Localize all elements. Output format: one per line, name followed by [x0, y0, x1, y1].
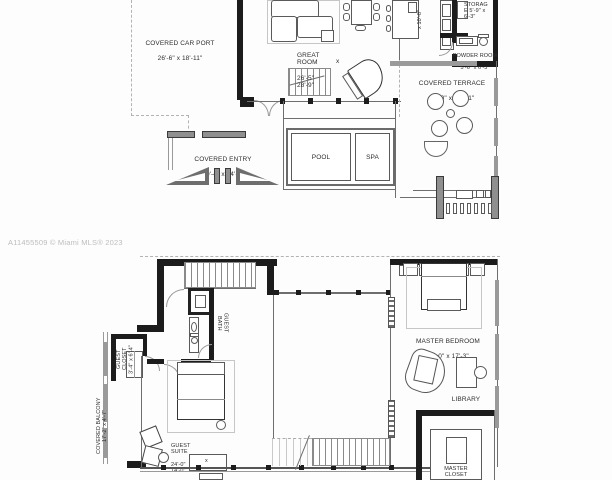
- step-landing: [456, 190, 473, 199]
- terrace-north-wall: [390, 61, 478, 66]
- terrace-label: COVERED TERRACE 24'-0" x 17'-11": [404, 72, 500, 110]
- great-room-south-glass-line: [243, 101, 401, 102]
- pool-deck-west-line: [283, 101, 284, 190]
- suite-north-wall: [147, 359, 164, 364]
- nightstand: [216, 420, 226, 430]
- column-post: [308, 98, 313, 104]
- dining-chair: [373, 3, 380, 11]
- door-swing: [166, 289, 184, 307]
- side-table: [158, 452, 169, 463]
- roof-dashed-line: [140, 256, 500, 257]
- suite-east-line: [273, 294, 274, 438]
- side-table: [321, 30, 334, 42]
- pantry-shelf: [442, 19, 451, 31]
- column-post: [336, 98, 341, 104]
- steps-stub-line: [413, 190, 437, 191]
- column-post: [242, 98, 247, 104]
- bed-pillow-line: [421, 276, 467, 277]
- kitchen-sink: [408, 2, 417, 13]
- railing-post: [196, 465, 201, 470]
- pantry-shelf: [442, 4, 451, 17]
- bar-stool: [386, 5, 391, 12]
- pillar: [436, 176, 444, 219]
- baluster: [488, 203, 492, 214]
- window-louver: [388, 297, 395, 328]
- bed-pillows: [177, 362, 225, 375]
- baluster: [481, 203, 485, 214]
- grand-piano: [340, 51, 394, 105]
- room-dims: 5'-6" x 6'-3": [448, 65, 502, 71]
- guest-bath-label: GUEST BATH: [216, 303, 228, 343]
- entry-planter-bar: [202, 131, 246, 138]
- balcony-label: COVERED BALCONY 17'-2" x 4'-7": [96, 395, 108, 457]
- desk-chair: [474, 366, 487, 379]
- dining-table: [351, 0, 372, 25]
- suite-west-line: [141, 356, 142, 467]
- dining-chair: [343, 13, 350, 21]
- lounge-chair: [452, 90, 469, 107]
- terrace-dashed-divider: [399, 60, 400, 117]
- window-louver: [388, 400, 395, 438]
- great-room-west-wall: [237, 0, 243, 100]
- dimension-x-mark: x: [336, 58, 339, 66]
- room-name: GREAT ROOM: [297, 52, 333, 67]
- pool-deck-south-line: [283, 189, 396, 190]
- step-block: [485, 190, 491, 198]
- bar-stool: [386, 15, 391, 22]
- entry-planter-bar: [167, 131, 195, 138]
- great-room-label: GREAT ROOM 26'-5" 28'-9": [297, 44, 333, 98]
- dining-chair: [373, 13, 380, 21]
- f2-west-wall-upper: [157, 259, 164, 329]
- floor-plan-sheet: COVERED CAR PORT 26'-6" x 18'-11" GREAT …: [0, 0, 612, 480]
- f2-south-railing-line: [140, 471, 432, 472]
- powder-sink: [459, 38, 473, 44]
- pool-deck-north-line: [283, 118, 396, 119]
- entry-bollard: [214, 168, 220, 184]
- carport-dashed-south: [131, 115, 189, 116]
- hall-wall: [137, 325, 164, 332]
- bed-fold-line: [177, 399, 225, 400]
- railing-post: [266, 465, 271, 470]
- carport-label: COVERED CAR PORT 26'-6" x 18'-11": [128, 32, 232, 70]
- dining-chair: [343, 3, 350, 11]
- room-name: POWDER ROOM: [448, 53, 502, 59]
- stairs-upper-run: [184, 262, 256, 288]
- shower-pan: [195, 295, 206, 308]
- toilet-bowl: [479, 37, 488, 46]
- baluster: [467, 203, 471, 214]
- railing-post: [231, 465, 236, 470]
- curved-bench: [424, 141, 448, 157]
- room-name: COVERED CAR PORT: [128, 40, 232, 48]
- baluster: [474, 203, 478, 214]
- patio-table: [446, 109, 455, 118]
- entry-planter-triangle: [166, 167, 209, 185]
- room-name: MASTER BEDROOM: [400, 338, 496, 346]
- spa-label: SPA: [355, 154, 390, 162]
- accent-chair: [139, 425, 162, 448]
- room-name: COVERED TERRACE: [404, 80, 500, 88]
- void-west-wall: [267, 259, 274, 295]
- toilet-bowl: [191, 337, 198, 344]
- terrace-north-wall-black: [477, 61, 498, 66]
- baluster: [453, 203, 457, 214]
- room-dims: 26'-6" x 18'-11": [128, 55, 232, 63]
- void-north-railing: [274, 292, 391, 294]
- dining-chair: [355, 25, 366, 31]
- dimension-x-mark: x: [205, 458, 208, 464]
- stairs-lower-run: [312, 438, 390, 466]
- bath-sink: [191, 322, 197, 332]
- door-swing: [198, 344, 212, 358]
- step-block: [476, 190, 484, 198]
- lounge-chair: [431, 120, 448, 137]
- lounge-chair: [427, 93, 444, 110]
- entry-bollard: [225, 168, 231, 184]
- lounge-chair: [456, 117, 473, 134]
- mcloset-east-line: [494, 410, 495, 480]
- railing-post: [296, 290, 301, 295]
- door-swing: [254, 100, 269, 116]
- room-dims: 26'-5" 28'-9": [297, 75, 333, 90]
- guest-closet-label: GUEST CLOSET 3'-4" x 6'-4": [116, 338, 134, 380]
- library-label: LIBRARY: [440, 396, 492, 404]
- pillar: [491, 176, 499, 219]
- entry-west-line: [172, 138, 173, 170]
- bar-stool: [386, 25, 391, 32]
- mcloset-west-wall: [416, 410, 422, 480]
- storage-label: STORAG E 5'-9" x 6'-3": [464, 2, 498, 20]
- railing-post: [161, 465, 166, 470]
- window-segment: [495, 280, 499, 326]
- pool-label: POOL: [291, 154, 351, 162]
- kitchen-dim-label: x 10'-8": [417, 1, 427, 37]
- railing-post: [356, 290, 361, 295]
- pool-deck-east-line: [395, 101, 396, 198]
- window-segment: [495, 386, 499, 428]
- entry-west-line: [168, 138, 169, 170]
- mcloset-north-wall: [416, 410, 495, 416]
- baluster: [460, 203, 464, 214]
- closet-east-wall: [143, 334, 147, 356]
- balcony-rail-segment: [103, 342, 107, 376]
- sofa-section: [271, 16, 297, 42]
- baluster: [446, 203, 450, 214]
- window-segment: [494, 118, 498, 146]
- master-closet-label: MASTER CLOSET: [430, 466, 482, 478]
- room-name: COVERED ENTRY: [180, 156, 266, 164]
- railing-post: [274, 290, 279, 295]
- bed-foot-bench: [427, 299, 461, 311]
- railing-post: [326, 290, 331, 295]
- entry-planter-triangle: [236, 167, 279, 185]
- bench-stool: [199, 473, 223, 480]
- closet-island-inner: [446, 437, 467, 464]
- mls-watermark: A11455509 © Miami MLS® 2023: [8, 238, 123, 247]
